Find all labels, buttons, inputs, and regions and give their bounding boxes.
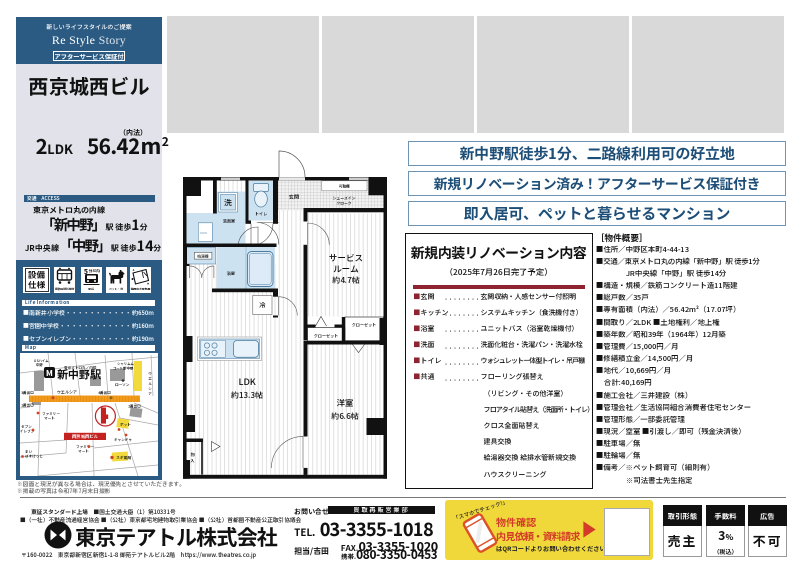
svg-text:洋室: 洋室 [336, 397, 353, 409]
svg-text:キャンドゥ: キャンドゥ [114, 438, 132, 443]
svg-text:約6.6帖: 約6.6帖 [330, 411, 359, 422]
svg-text:ウエルシア: ウエルシア [147, 371, 152, 396]
svg-text:スギ薬局: スギ薬局 [116, 455, 131, 461]
svg-text:マート: マート [78, 450, 89, 455]
svg-text:トイレ: トイレ [255, 212, 268, 218]
svg-text:玄関: 玄関 [289, 194, 300, 201]
svg-text:1番出口: 1番出口 [21, 403, 34, 409]
svg-text:コート新中野: コート新中野 [113, 366, 134, 371]
svg-text:浴室: 浴室 [226, 270, 236, 277]
svg-text:ルーム: ルーム [333, 263, 359, 275]
svg-text:分以内: 分以内 [88, 268, 100, 274]
svg-text:可動棚: 可動棚 [338, 184, 350, 190]
svg-text:ばすけっと: ばすけっと [25, 454, 43, 460]
svg-text:クローゼット: クローゼット [352, 323, 377, 329]
svg-text:ウエルシア: ウエルシア [57, 390, 77, 396]
svg-text:入: 入 [190, 458, 195, 464]
svg-text:約4.7帖: 約4.7帖 [331, 275, 360, 286]
svg-text:クローク: クローク [336, 201, 351, 207]
svg-text:LDK: LDK [238, 375, 255, 388]
svg-text:2番出口: 2番出口 [128, 404, 141, 410]
svg-text:冷: 冷 [259, 300, 266, 310]
svg-text:約13.3帖: 約13.3帖 [230, 390, 263, 401]
svg-text:マート: マート [44, 417, 55, 422]
svg-text:給湯器: 給湯器 [196, 254, 209, 260]
svg-text:西京城西ビル: 西京城西ビル [71, 433, 99, 440]
svg-text:中野: 中野 [36, 362, 43, 367]
svg-text:3番出口: 3番出口 [21, 390, 34, 396]
svg-text:新中野駅: 新中野駅 [57, 367, 101, 383]
svg-text:ポット: ポット [119, 423, 131, 428]
svg-text:クローゼット: クローゼット [314, 334, 339, 340]
svg-text:ローソン: ローソン [115, 383, 130, 388]
svg-text:M: M [46, 368, 53, 379]
svg-text:洗: 洗 [224, 198, 233, 209]
svg-text:洗面室: 洗面室 [223, 219, 236, 225]
svg-text:4番出口: 4番出口 [98, 390, 111, 396]
